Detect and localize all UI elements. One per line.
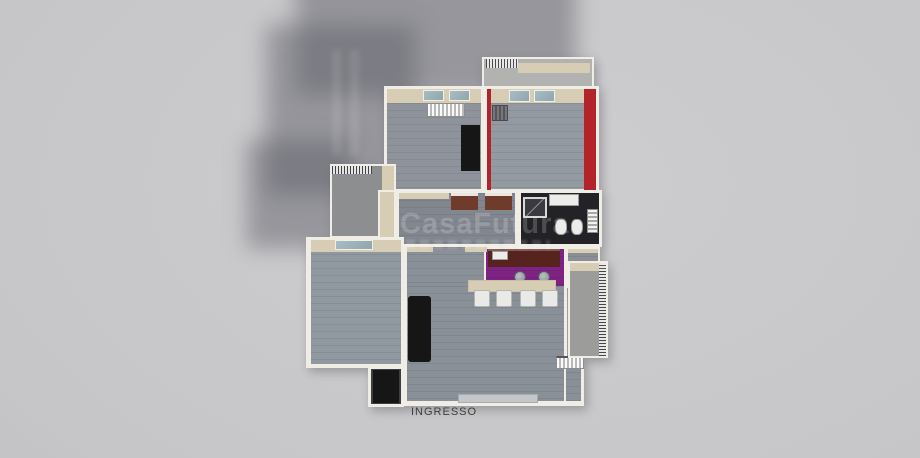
red-wall-edge [487,89,491,190]
wardrobe [461,125,480,171]
wall-band [568,249,598,253]
kitchen-sink [492,251,508,260]
balcony-right [568,261,608,358]
entrance-door [458,394,538,403]
sink-counter [549,194,579,206]
window [449,90,470,101]
chair [474,290,490,307]
watermark-tagline [406,240,550,249]
entrance-label: INGRESSO [411,406,477,418]
bidet [571,219,583,235]
watermark: CasaFutura [400,208,570,241]
room-bedroom-top-left [384,86,484,193]
wall-band [399,193,449,199]
room-bedroom-top-right [484,86,599,193]
room-bedroom-left [306,237,404,368]
window [335,240,373,250]
parapet-wall [518,63,590,73]
red-accent-wall [584,89,596,190]
chair [542,290,558,307]
floor-plan-render: CasaFutura INGRESSO [0,0,920,458]
entry-niche [368,366,404,407]
window [423,90,444,101]
terrace-top [482,57,594,89]
towel-radiator [587,209,598,233]
chair [520,290,536,307]
chair [496,290,512,307]
radiator [492,105,508,121]
railing [332,166,372,174]
window [509,90,530,102]
sofa [408,296,431,362]
railing [486,59,518,68]
dark-furniture [373,370,399,403]
radiator [427,103,465,117]
railing [599,263,606,356]
window [534,90,555,102]
